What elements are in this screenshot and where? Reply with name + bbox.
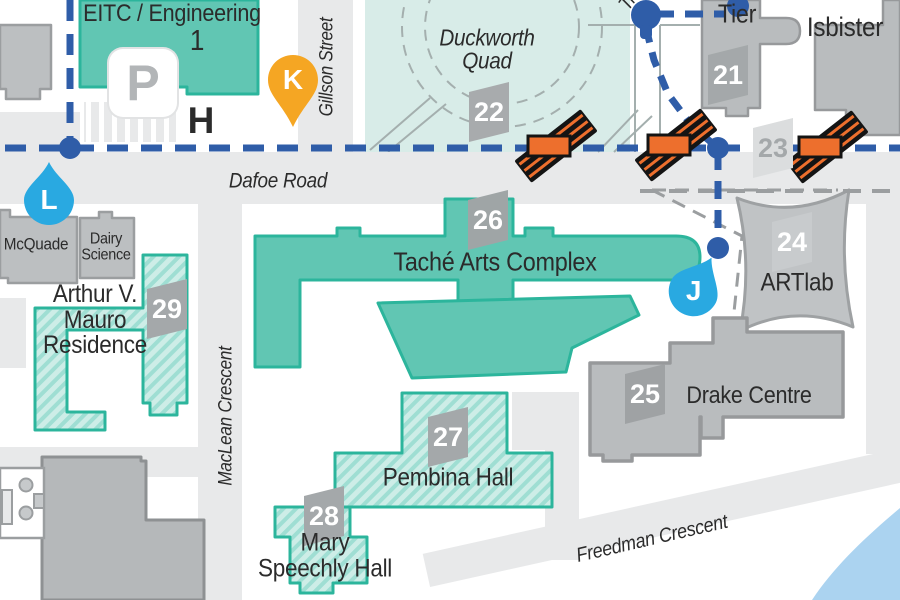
stop-drop-l[interactable]: L — [21, 160, 77, 226]
badge-22[interactable]: 22 — [469, 82, 509, 142]
road-east — [866, 204, 900, 454]
badge-25[interactable]: 25 — [625, 364, 665, 424]
badge-28[interactable]: 28 — [304, 486, 344, 546]
path-left-stub — [0, 298, 26, 368]
badge-29[interactable]: 29 — [147, 279, 187, 339]
badge-24[interactable]: 24 — [772, 212, 812, 272]
badge-21-label: 21 — [713, 60, 743, 91]
badge-29-label: 29 — [152, 294, 182, 325]
river-water — [812, 508, 900, 600]
badge-27[interactable]: 27 — [428, 407, 468, 467]
badge-27-label: 27 — [433, 422, 463, 453]
courtyard-detail — [0, 468, 44, 538]
badge-25-label: 25 — [630, 379, 660, 410]
stop-drop-l-label: L — [21, 184, 77, 216]
parking-icon-label: P — [126, 54, 159, 112]
parking-icon[interactable]: P — [109, 49, 177, 117]
path-pembina-east — [512, 392, 548, 450]
route-node-dafoe-east[interactable] — [707, 137, 729, 159]
badge-22-label: 22 — [474, 97, 504, 128]
badge-26-label: 26 — [473, 205, 503, 236]
badge-24-label: 24 — [777, 227, 807, 258]
building-dairy-science[interactable] — [80, 212, 134, 278]
stop-pin-k[interactable]: K — [265, 52, 321, 130]
campus-map: 21 22 23 24 25 26 27 28 29 K L J P H EIT… — [0, 0, 900, 600]
stop-drop-j-label: J — [666, 275, 722, 307]
route-node-west[interactable] — [59, 137, 81, 159]
building-isbister[interactable] — [815, 0, 900, 135]
stop-pin-k-label: K — [265, 64, 321, 96]
badge-23-label: 23 — [758, 133, 788, 164]
badge-21[interactable]: 21 — [708, 45, 748, 105]
building-bottomleft[interactable] — [42, 457, 204, 600]
marker-h-label: H — [188, 100, 215, 141]
badge-23[interactable]: 23 — [753, 118, 793, 178]
badge-26[interactable]: 26 — [468, 190, 508, 250]
route-node-top-stem — [640, 25, 652, 39]
building-topleft[interactable] — [0, 25, 51, 99]
marker-h[interactable]: H — [188, 100, 215, 142]
badge-28-label: 28 — [309, 501, 339, 532]
